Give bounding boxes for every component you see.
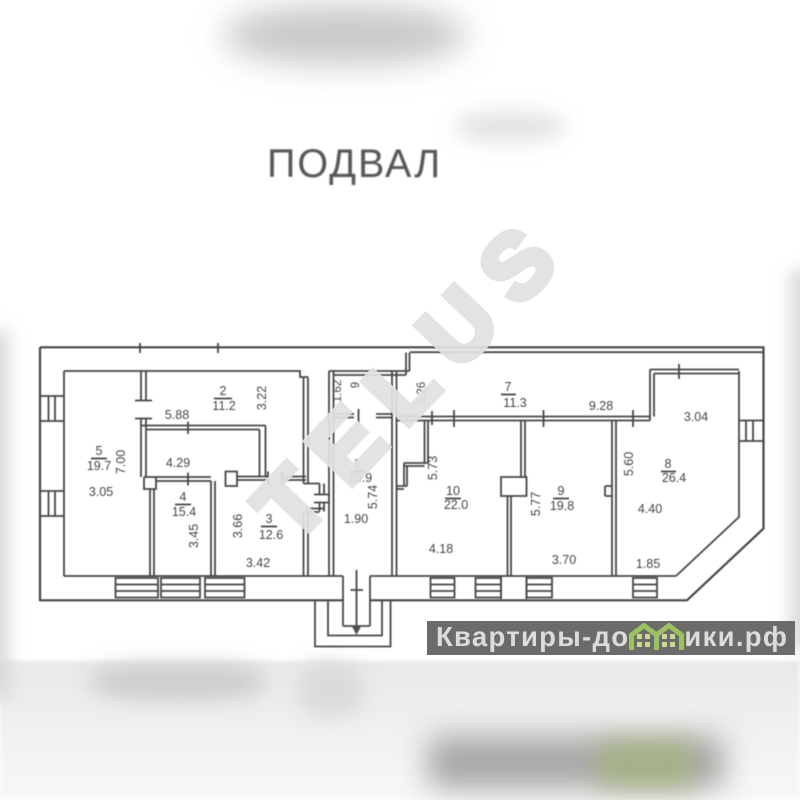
svg-text:9.28: 9.28 — [589, 399, 613, 413]
svg-text:3.42: 3.42 — [246, 556, 270, 570]
svg-text:5.88: 5.88 — [165, 408, 189, 422]
svg-text:5.77: 5.77 — [529, 492, 543, 516]
svg-text:7: 7 — [505, 380, 512, 394]
svg-text:3.05: 3.05 — [89, 485, 113, 499]
svg-text:7.00: 7.00 — [114, 450, 128, 474]
svg-text:10: 10 — [446, 484, 460, 498]
svg-text:19.7: 19.7 — [87, 459, 111, 473]
svg-text:3.22: 3.22 — [255, 386, 269, 410]
svg-text:3.04: 3.04 — [684, 410, 708, 424]
svg-text:1: 1 — [354, 457, 361, 471]
svg-text:2: 2 — [220, 384, 227, 398]
svg-text:9: 9 — [558, 484, 565, 498]
svg-text:19.8: 19.8 — [550, 499, 574, 513]
svg-text:9: 9 — [350, 382, 362, 388]
svg-text:5.73: 5.73 — [426, 456, 440, 480]
svg-text:3.45: 3.45 — [187, 524, 201, 548]
svg-text:8: 8 — [665, 457, 672, 471]
svg-text:5.74: 5.74 — [366, 485, 380, 509]
svg-text:5.60: 5.60 — [622, 452, 636, 476]
svg-text:3.70: 3.70 — [552, 553, 576, 567]
svg-text:10.9: 10.9 — [348, 471, 372, 485]
svg-text:3.26: 3.26 — [416, 382, 428, 404]
svg-text:12.6: 12.6 — [259, 528, 283, 542]
svg-text:4.18: 4.18 — [429, 542, 453, 556]
svg-text:26.4: 26.4 — [662, 471, 686, 485]
svg-text:1.85: 1.85 — [636, 557, 660, 571]
svg-text:3: 3 — [266, 512, 273, 526]
svg-text:3.66: 3.66 — [231, 514, 245, 538]
svg-text:5: 5 — [96, 444, 103, 458]
svg-text:11.2: 11.2 — [212, 399, 235, 413]
svg-text:4.29: 4.29 — [166, 456, 190, 470]
svg-text:22.0: 22.0 — [444, 498, 468, 512]
svg-text:4.40: 4.40 — [638, 502, 662, 516]
svg-text:1.90: 1.90 — [344, 512, 368, 526]
svg-text:15.4: 15.4 — [172, 505, 196, 519]
svg-text:11.3: 11.3 — [503, 396, 526, 410]
svg-text:4: 4 — [180, 490, 187, 504]
svg-text:1.62: 1.62 — [332, 380, 344, 402]
